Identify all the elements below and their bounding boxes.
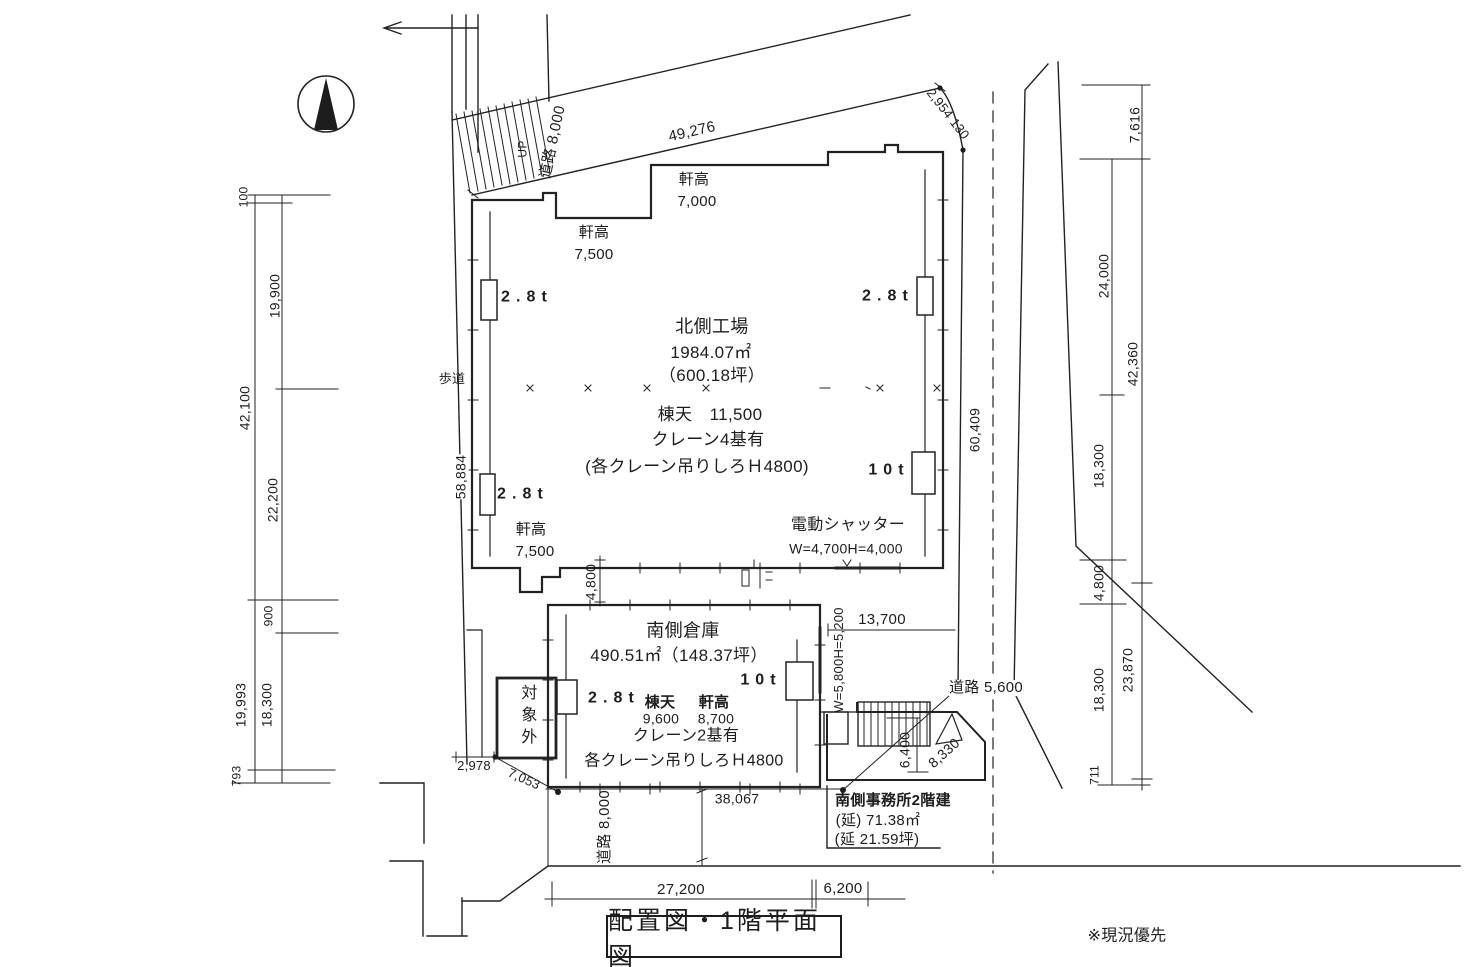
north-arrow-icon xyxy=(298,76,354,132)
crane-10t-right: 10t xyxy=(868,463,909,480)
site-plan-linework xyxy=(0,0,1466,967)
dim-13700: 13,700 xyxy=(858,612,906,628)
south-office-line2: (延) 71.38㎡ xyxy=(836,813,921,829)
north-factory-ridge: 棟天 11,500 xyxy=(658,406,763,424)
north-factory-area: 1984.07㎡ xyxy=(670,344,751,362)
south-warehouse-area: 490.51㎡（148.37坪） xyxy=(590,647,767,665)
eave-label-top-left: 軒高 xyxy=(579,225,610,241)
excluded-box-label: 対象外 xyxy=(518,684,535,750)
crane-2-8t-bottom-left: 2.8t xyxy=(497,487,549,504)
dim-60409: 60,409 xyxy=(968,408,983,453)
north-factory-crane-note: (各クレーン吊りしろＨ4800) xyxy=(585,458,809,476)
dim-right-18300a: 18,300 xyxy=(1092,444,1107,489)
electric-shutter-size: W=4,700H=4,000 xyxy=(789,542,903,557)
dim-right-23870: 23,870 xyxy=(1121,648,1136,693)
warehouse-eave-label: 軒高 xyxy=(699,695,730,711)
crane-2-8t-top-left: 2.8t xyxy=(501,290,553,307)
dim-right-24000: 24,000 xyxy=(1097,254,1112,299)
site-plan-drawing: 北側工場 1984.07㎡ （600.18坪） 棟天 11,500 クレーン4基… xyxy=(0,0,1466,967)
stairs-hatch xyxy=(456,97,550,193)
drawing-title: 配置図・1階平面図 xyxy=(608,901,840,967)
dim-right-7616: 7,616 xyxy=(1128,107,1143,143)
south-office-line3: (延 21.59坪) xyxy=(835,832,920,848)
dim-left-18300: 18,300 xyxy=(260,683,275,728)
eave-label-bottom-left: 軒高 xyxy=(516,522,547,538)
dim-left-900: 900 xyxy=(263,606,276,627)
dim-right-4800: 4,800 xyxy=(1092,565,1107,601)
stairs-up-label: UP xyxy=(517,140,530,157)
drawing-title-box: 配置図・1階平面図 xyxy=(606,915,842,958)
sidewalk-label: 歩道 xyxy=(439,372,466,386)
dim-6200: 6,200 xyxy=(823,881,862,897)
south-warehouse-name: 南側倉庫 xyxy=(646,622,719,641)
dim-58884: 58,884 xyxy=(454,455,469,500)
north-factory-name: 北側工場 xyxy=(675,318,748,337)
eave-value-top-right: 7,000 xyxy=(677,194,716,210)
north-factory-cranes: クレーン4基有 xyxy=(652,431,765,449)
crane-2-8t-warehouse: 2.8t xyxy=(588,691,640,708)
warehouse-ridge-label: 棟天 xyxy=(645,695,676,711)
road-right-label: 道路 5,600 xyxy=(949,680,1023,696)
dim-right-711: 711 xyxy=(1089,765,1102,785)
warehouse-crane-note: 各クレーン吊りしろＨ4800 xyxy=(584,754,783,771)
dim-left-19900: 19,900 xyxy=(268,274,283,319)
dim-left-793: 793 xyxy=(231,766,244,787)
crane-2-8t-top-right: 2.8t xyxy=(862,289,914,306)
dim-right-42360: 42,360 xyxy=(1126,342,1141,387)
warehouse-shutter-size: W=5,800H=5,200 xyxy=(832,607,846,713)
dim-6400: 6,400 xyxy=(898,732,913,768)
crane-10t-warehouse: 10t xyxy=(740,673,781,690)
south-office-line1: 南側事務所2階建 xyxy=(835,793,951,809)
dim-left-19993: 19,993 xyxy=(234,683,249,728)
eave-value-bottom-left: 7,500 xyxy=(515,544,554,560)
dim-38067: 38,067 xyxy=(715,792,760,807)
warehouse-cranes: クレーン2基有 xyxy=(633,729,739,746)
dim-left-100: 100 xyxy=(238,187,251,208)
north-factory-area-tsubo: （600.18坪） xyxy=(659,367,765,385)
excluded-box-outline xyxy=(467,630,556,758)
dim-27200: 27,200 xyxy=(657,882,705,898)
warehouse-ridge-value: 9,600 xyxy=(643,712,679,727)
dim-left-22200: 22,200 xyxy=(266,478,281,523)
dim-gap-4800: 4,800 xyxy=(584,564,599,600)
eave-label-top-right: 軒高 xyxy=(679,172,710,188)
warehouse-eave-value: 8,700 xyxy=(698,712,734,727)
road-bottom-label: 道路 8,000 xyxy=(597,790,613,864)
electric-shutter-label: 電動シャッター xyxy=(791,518,905,535)
dim-right-18300b: 18,300 xyxy=(1092,668,1107,713)
dim-left-42100: 42,100 xyxy=(238,386,253,431)
note-genkyo-yusen: ※現況優先 xyxy=(1087,929,1166,946)
dim-2978: 2,978 xyxy=(457,759,491,773)
eave-value-top-left: 7,500 xyxy=(574,247,613,263)
